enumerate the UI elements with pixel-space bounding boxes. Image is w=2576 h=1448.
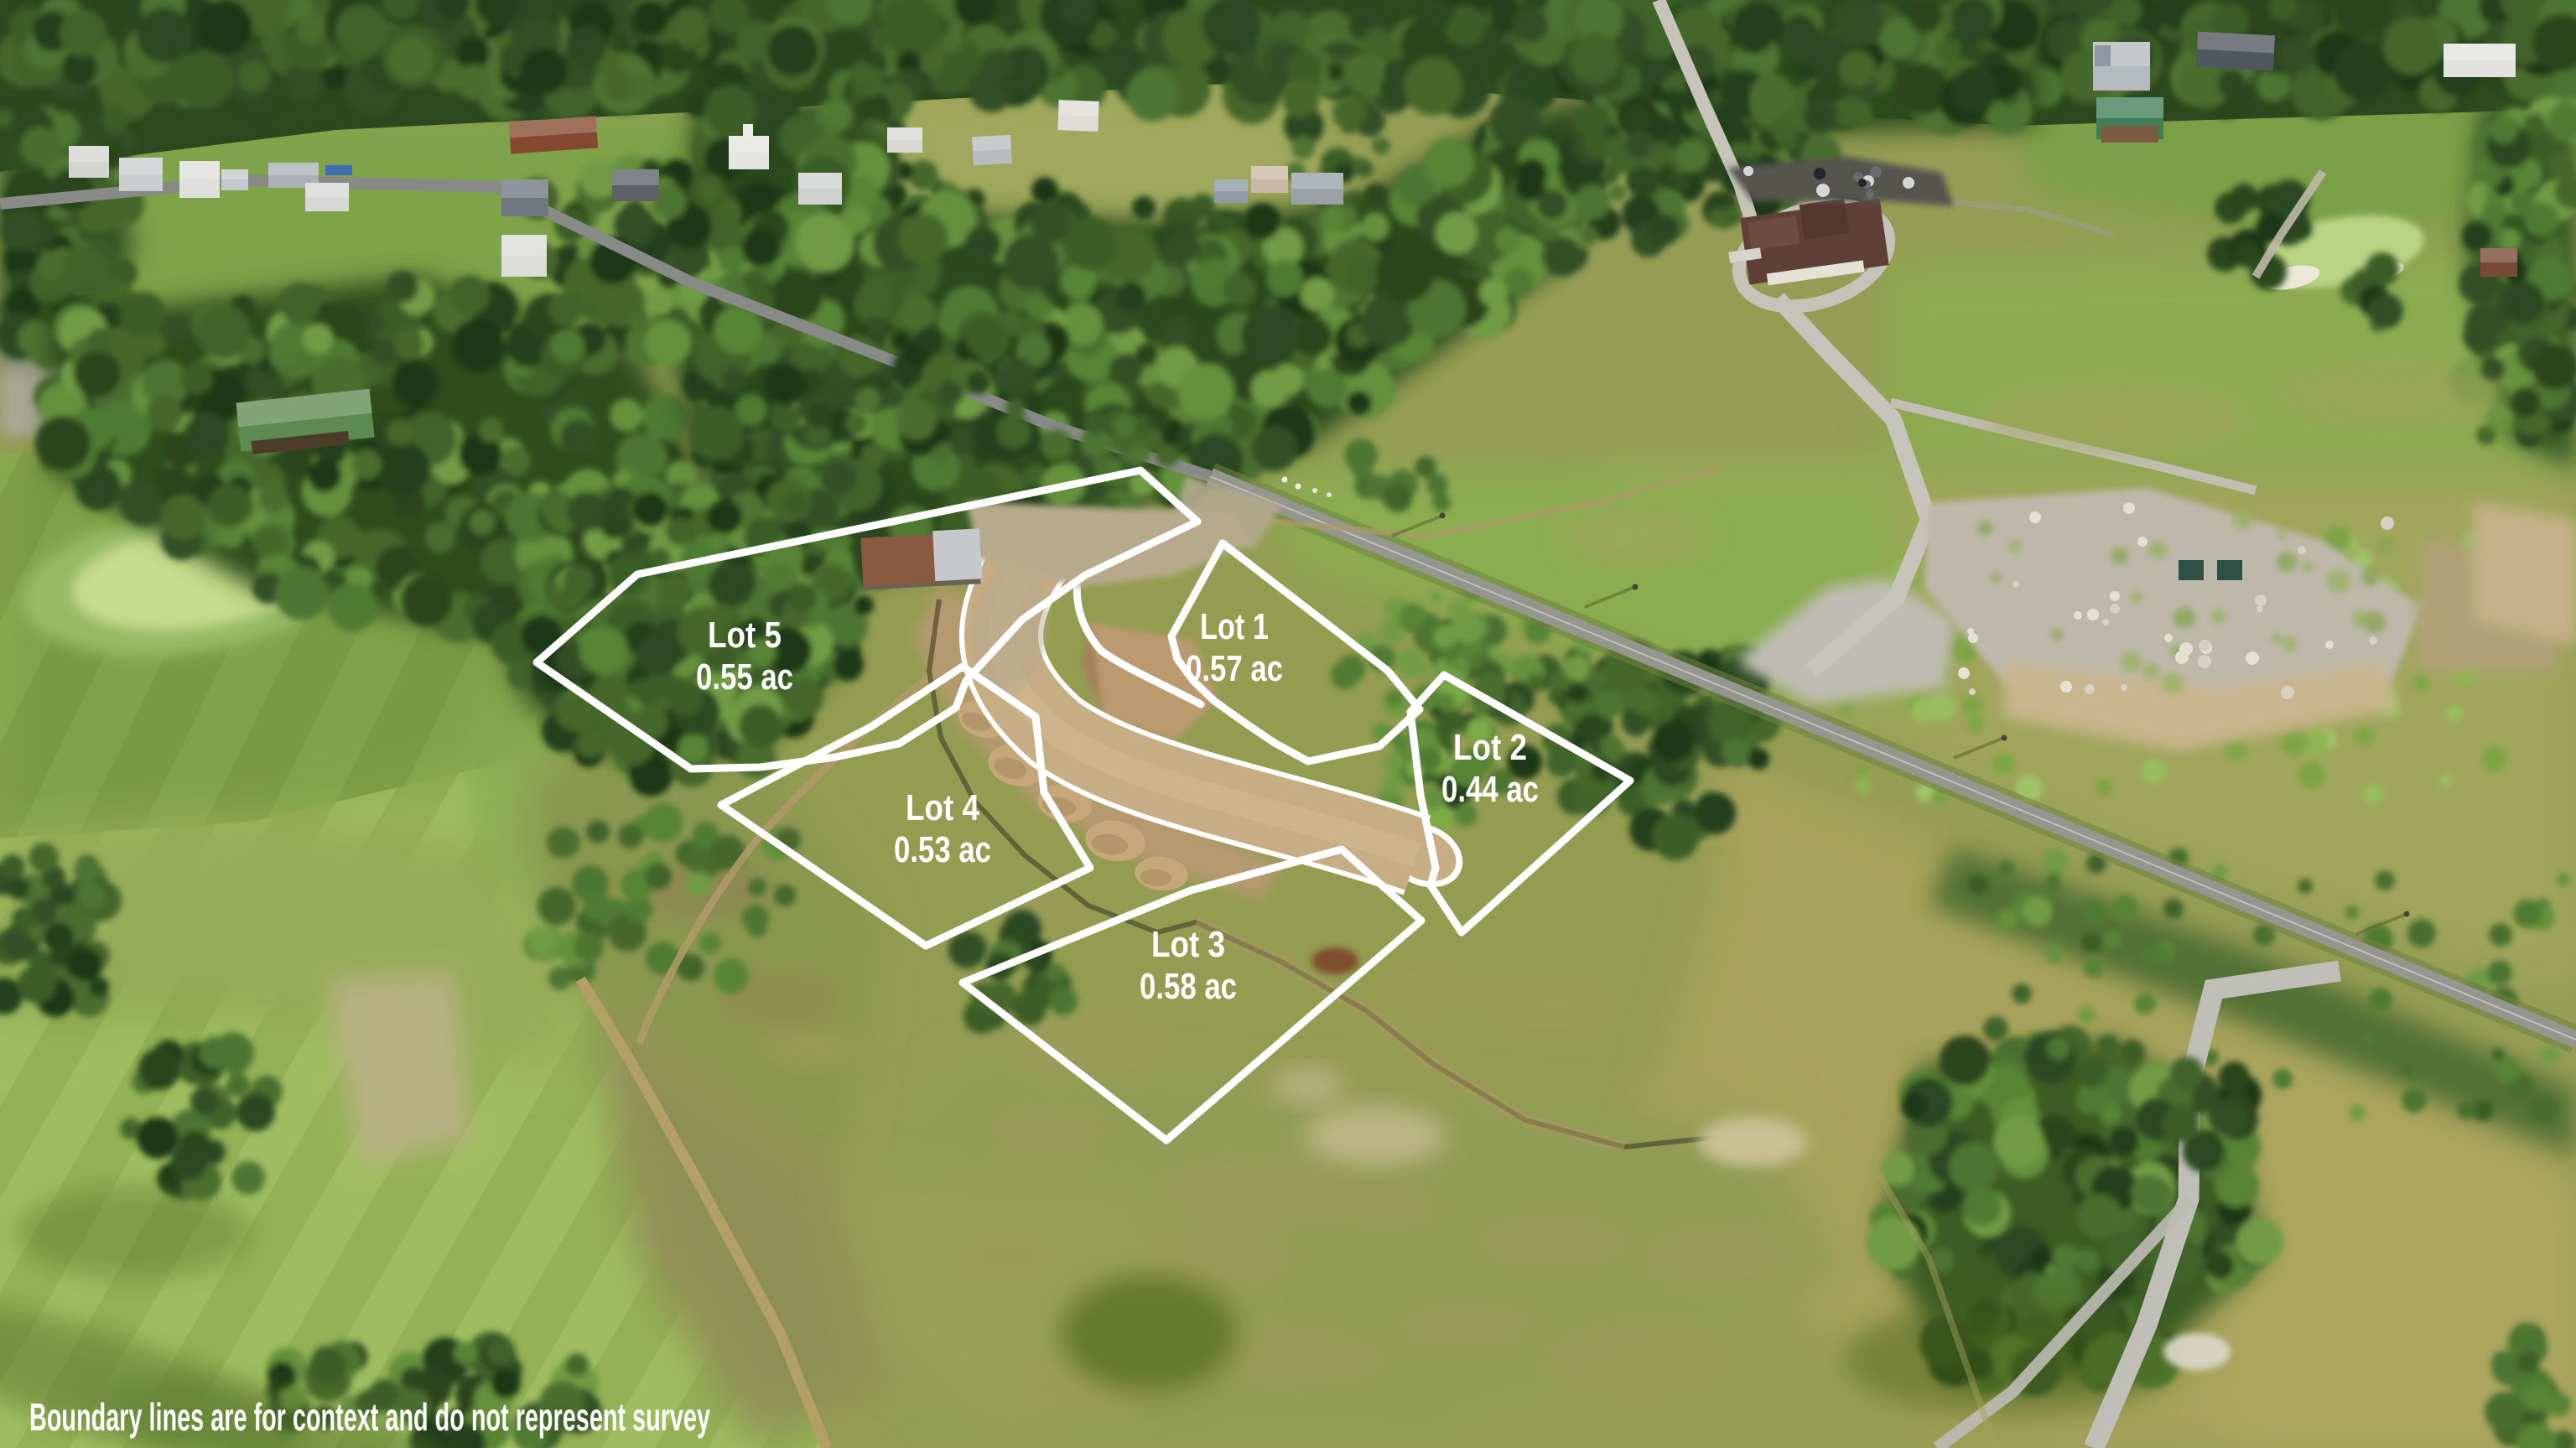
svg-text:Lot 4: Lot 4 (906, 787, 979, 828)
svg-text:0.57 ac: 0.57 ac (1186, 648, 1283, 689)
svg-text:Lot 1: Lot 1 (1200, 606, 1269, 647)
svg-text:Lot 5: Lot 5 (708, 615, 782, 656)
svg-text:0.58 ac: 0.58 ac (1140, 966, 1237, 1007)
svg-text:0.44 ac: 0.44 ac (1441, 769, 1539, 810)
svg-text:0.55 ac: 0.55 ac (696, 657, 793, 698)
svg-text:Boundary lines are for context: Boundary lines are for context and do no… (29, 1395, 710, 1439)
svg-text:Lot 3: Lot 3 (1151, 924, 1225, 965)
svg-text:0.53 ac: 0.53 ac (894, 829, 991, 870)
svg-text:Lot 2: Lot 2 (1453, 727, 1527, 768)
